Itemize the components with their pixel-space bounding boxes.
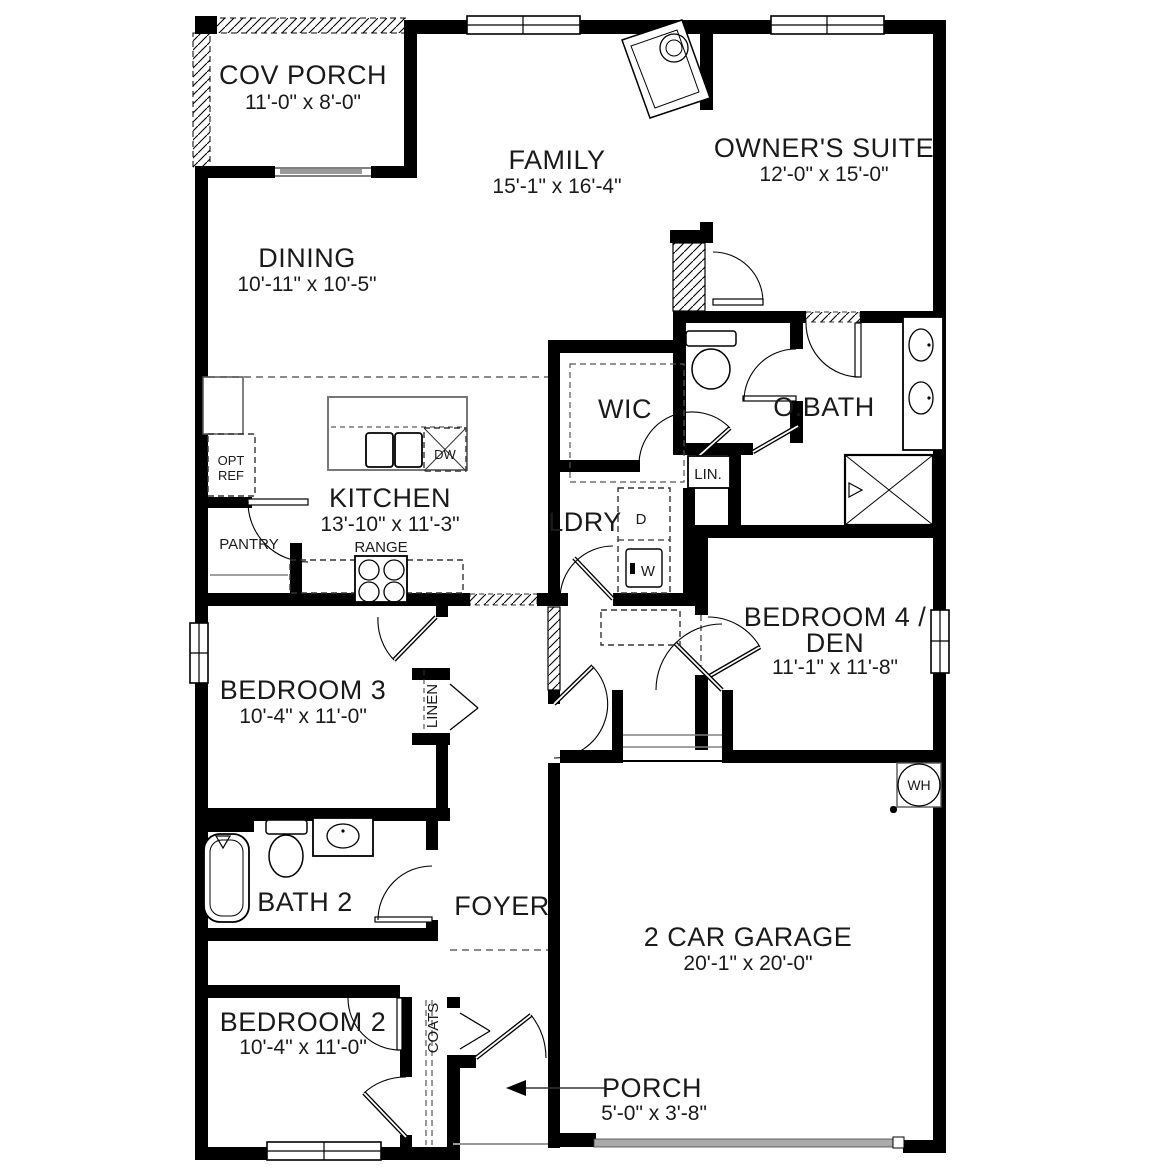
room-dims-bedroom2: 10'-4" x 11'-0" [239,1036,367,1059]
room-dims-family: 15'-1" x 16'-4" [492,175,621,198]
label-opt-ref-1: OPT [218,453,245,468]
kitchen-counter [203,377,243,434]
room-label-garage: 2 CAR GARAGE [644,922,853,952]
room-label-porch: PORCH [602,1073,702,1103]
room-dims-cov-porch: 11'-0" x 8'-0" [245,91,361,114]
coats-closet-door [460,1013,490,1049]
room-label-owners-suite: OWNER'S SUITE [714,133,934,163]
label-dishwasher: DW [434,447,456,462]
laundry-door [560,546,613,599]
bathtub [204,834,249,922]
label-dryer: D [636,511,647,528]
label-linen-cabinet: LIN. [694,466,722,483]
room-label-family: FAMILY [508,145,605,175]
label-water-heater: WH [907,777,930,793]
porch-entry-door [275,168,371,176]
bedroom2-window [267,1142,381,1160]
floor-plan-drawing: COV PORCH 11'-0" x 8'-0" FAMILY 15'-1" x… [0,0,1150,1170]
garage-entry-door [656,624,722,690]
room-dims-garage: 20'-1" x 20'-0" [683,952,812,975]
garage-step [612,735,733,761]
family-window [467,16,580,34]
bedroom4-window [931,610,949,673]
room-label-bath2: BATH 2 [257,887,353,917]
obath-vanity [903,317,943,450]
room-label-obath: O.BATH [773,392,875,422]
bedroom2-closet-door [364,1077,406,1137]
label-washer: W [641,563,656,580]
shower [845,455,933,525]
attic-access [601,610,680,645]
bath2-door [375,866,432,922]
room-dims-kitchen: 13'-10" x 11'-3" [320,513,459,536]
room-label-bedroom3: BEDROOM 3 [220,675,387,705]
garage-door [594,1137,904,1148]
toilet-bath2 [266,820,307,877]
room-label-bedroom4-line2: DEN [806,628,865,658]
room-label-dining: DINING [258,243,356,273]
label-opt-ref-2: REF [218,468,244,483]
bath2-vanity [313,818,373,856]
front-door [476,1015,546,1058]
owners-suite-window [771,16,884,34]
toilet-wc [686,331,736,389]
label-pantry: PANTRY [219,536,278,553]
room-dims-porch: 5'-0" x 3'-8" [601,1102,707,1125]
floor-plan-sheet: COV PORCH 11'-0" x 8'-0" FAMILY 15'-1" x… [0,0,1150,1170]
bedroom3-window [190,623,208,683]
owners-suite-door [713,252,763,305]
room-label-cov-porch: COV PORCH [219,60,387,90]
linen-closet-door [450,684,478,730]
hall-door [554,666,608,758]
room-dims-bedroom4: 11'-1" x 11'-8" [772,656,898,679]
obath-door [806,323,861,377]
room-label-ldry: LDRY [548,507,622,537]
label-coats-closet: COATS [425,1003,442,1054]
room-label-kitchen: KITCHEN [329,483,451,513]
fireplace [622,20,710,118]
room-label-wic: WIC [598,394,652,424]
label-range: RANGE [354,539,407,556]
room-label-bedroom2: BEDROOM 2 [220,1007,387,1037]
bedroom3-door [378,617,436,660]
room-dims-bedroom3: 10'-4" x 11'-0" [239,705,367,728]
label-linen-closet: LINEN [424,684,441,728]
room-dims-dining: 10'-11" x 10'-5" [237,273,376,296]
room-label-foyer: FOYER [454,891,550,921]
room-dims-owners-suite: 12'-0" x 15'-0" [759,163,888,186]
